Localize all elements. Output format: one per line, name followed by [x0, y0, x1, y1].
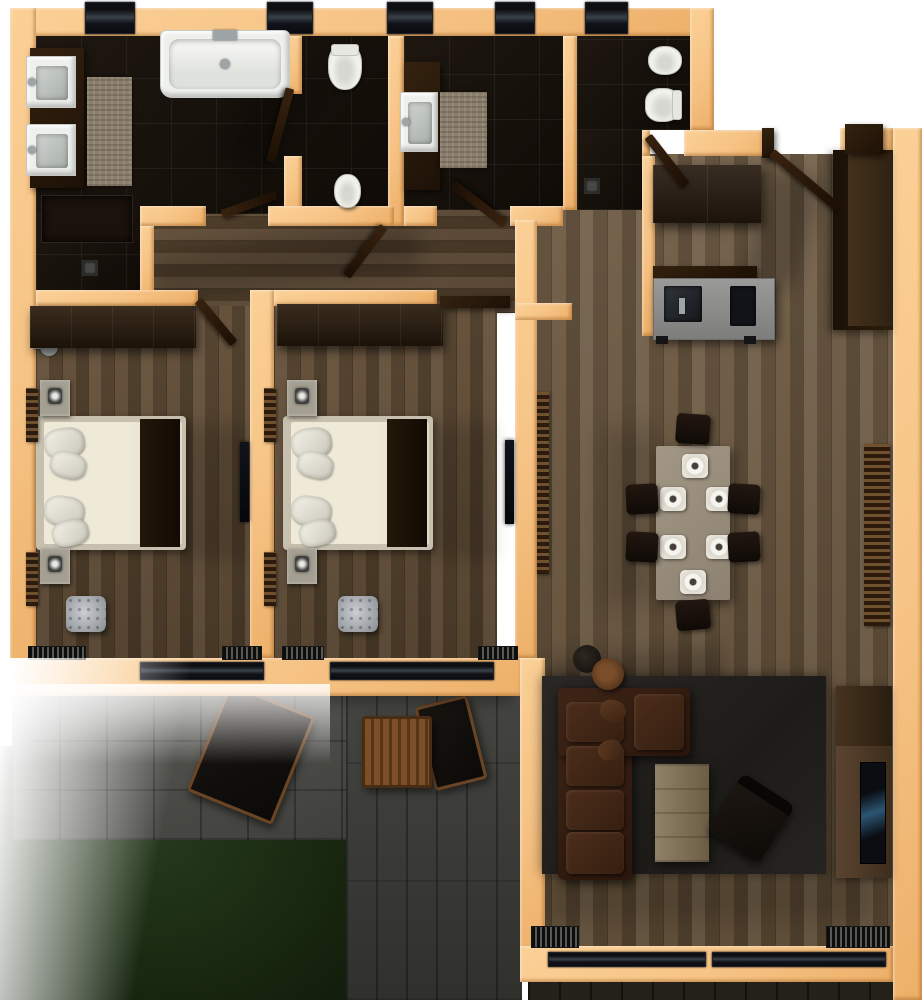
floor-plan-render	[0, 0, 922, 1000]
fade-layer	[0, 0, 922, 1000]
white-fade-top	[0, 684, 330, 764]
white-fade-left	[0, 658, 262, 1000]
